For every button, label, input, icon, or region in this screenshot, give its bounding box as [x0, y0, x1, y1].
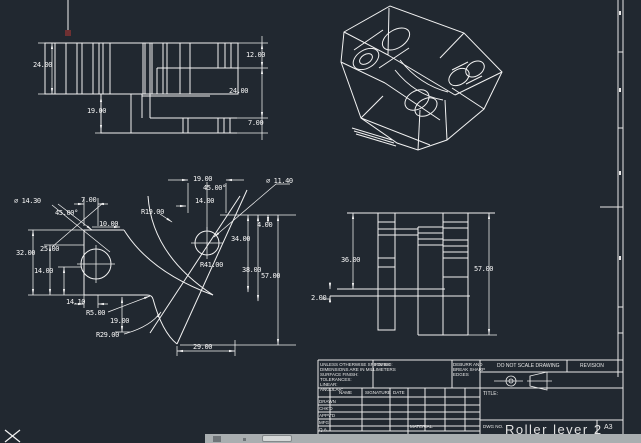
- top-view-geometry: [45, 43, 238, 133]
- dim-label: 19.00: [193, 176, 212, 183]
- taskbar-strip[interactable]: [205, 434, 641, 443]
- material-label: MATERIAL:: [410, 424, 433, 429]
- dim-label: R29.00: [96, 332, 119, 339]
- dim-label: 24.00: [229, 88, 248, 95]
- row-label-qa: Q.A: [319, 427, 327, 432]
- dim-label: 14.00: [34, 268, 53, 275]
- taskbar-grid-icon[interactable]: [213, 436, 221, 442]
- date-column-header: DATE: [393, 390, 405, 395]
- title-label: TITLE:: [483, 391, 498, 397]
- dim-label: 29.00: [193, 344, 212, 351]
- dim-label: 45.00°: [55, 210, 78, 217]
- signature-column-header: SIGNATURE: [365, 390, 391, 395]
- sheet-border: [600, 0, 623, 436]
- dim-label: ⌀ 14.30: [14, 198, 41, 205]
- cad-viewport[interactable]: 24.00 19.00 12.00 24.00 7.00 ⌀ 14.30 45.…: [0, 0, 641, 443]
- dim-label: 57.00: [261, 273, 280, 280]
- revision-label: REVISION: [580, 363, 604, 369]
- dim-label: 4.00: [257, 222, 272, 229]
- dim-label: ⌀ 11.40: [266, 178, 293, 185]
- deburr-note: DEBURR AND BREAK SHARP EDGES: [453, 362, 485, 377]
- dim-label: R19.00: [141, 209, 164, 216]
- dim-label: 7.00: [81, 197, 96, 204]
- dim-label: 19.00: [110, 318, 129, 325]
- dim-label: 36.00: [341, 257, 360, 264]
- row-label-chkd: CHK'D: [319, 406, 333, 411]
- isometric-view-geometry: [341, 6, 502, 150]
- dim-label: 14.00: [195, 198, 214, 205]
- dim-label: 24.00: [33, 62, 52, 69]
- dim-label: 45.00°: [203, 185, 226, 192]
- dim-label: 2.00: [311, 295, 326, 302]
- dim-label: 12.00: [246, 52, 265, 59]
- do-not-scale-label: DO NOT SCALE DRAWING: [497, 363, 560, 369]
- side-view-dim-lines: [322, 213, 497, 335]
- dim-label: 34.00: [231, 236, 250, 243]
- row-label-drawn: DRAWN: [319, 399, 336, 404]
- ucs-icon: [5, 430, 20, 442]
- finish-label: FINISH: [375, 362, 390, 367]
- projection-symbol: [494, 372, 552, 390]
- dim-label: 10.00: [99, 221, 118, 228]
- row-label-appvd: APPV'D: [319, 413, 335, 418]
- snap-marker: [65, 30, 71, 36]
- side-view-geometry: [330, 213, 495, 335]
- taskbar-dot-icon[interactable]: [243, 438, 246, 441]
- dim-label: 32.00: [16, 250, 35, 257]
- dim-label: R5.00: [86, 310, 105, 317]
- dim-label: 25.00: [40, 246, 59, 253]
- dim-label: 38.00: [242, 267, 261, 274]
- dim-label: R41.00: [200, 262, 223, 269]
- dim-label: 57.00: [474, 266, 493, 273]
- dwg-no-label: DWG NO.: [483, 424, 503, 429]
- taskbar-button[interactable]: [262, 435, 292, 442]
- name-column-header: NAME: [339, 390, 352, 395]
- dim-label: 14.10: [66, 299, 85, 306]
- row-label-mfg: MFG: [319, 420, 329, 425]
- dim-label: 19.00: [87, 108, 106, 115]
- dim-label: 7.00: [248, 120, 263, 127]
- sheet-size-label: A3: [604, 424, 613, 431]
